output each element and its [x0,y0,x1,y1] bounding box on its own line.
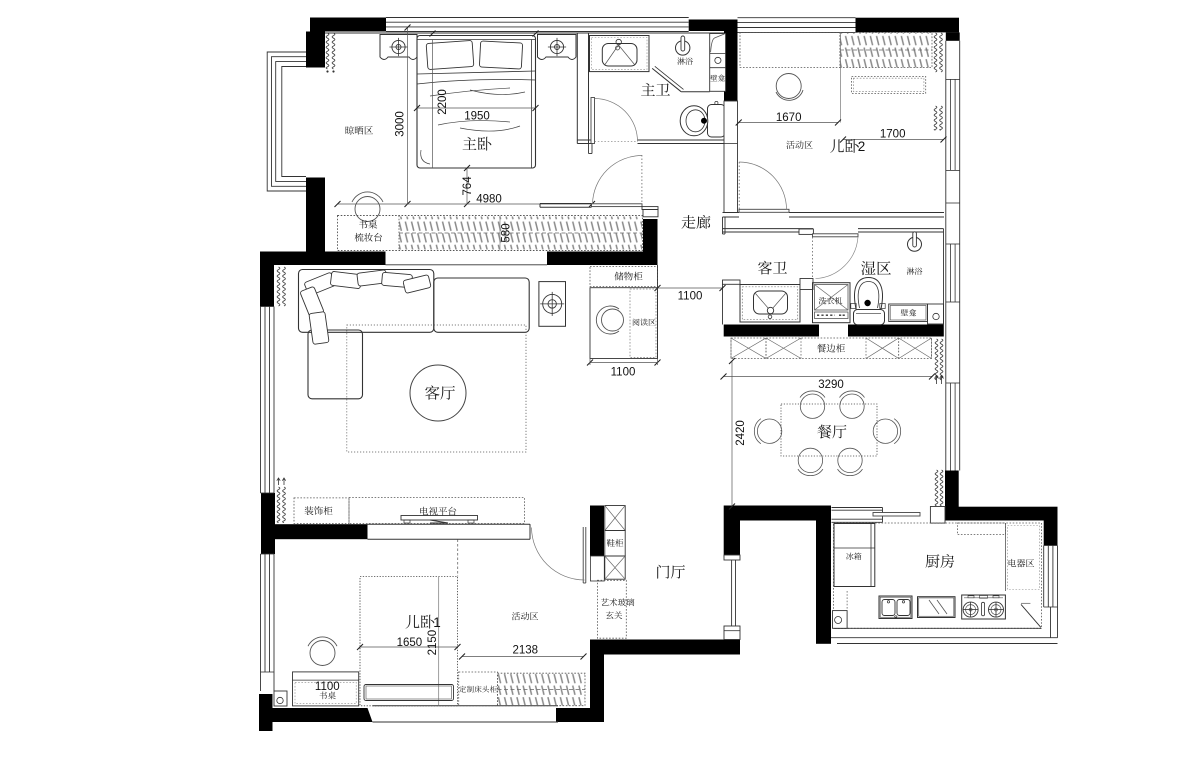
svg-text:2150: 2150 [427,630,439,656]
svg-text:1: 1 [433,615,441,630]
svg-text:4980: 4980 [476,194,502,206]
svg-text:3290: 3290 [818,379,844,391]
svg-text:1950: 1950 [464,110,490,122]
svg-text:764: 764 [462,176,474,196]
svg-text:1100: 1100 [611,367,636,379]
svg-text:1100: 1100 [315,681,340,693]
svg-text:1100: 1100 [678,290,703,302]
svg-text:1700: 1700 [880,128,906,140]
svg-text:580: 580 [501,223,513,242]
svg-text:1670: 1670 [776,112,802,124]
svg-text:2420: 2420 [735,420,747,446]
svg-text:1650: 1650 [397,637,423,649]
svg-text:2: 2 [858,139,866,154]
svg-text:2138: 2138 [513,645,539,657]
svg-text:3000: 3000 [395,111,407,137]
svg-text:2200: 2200 [437,89,449,115]
